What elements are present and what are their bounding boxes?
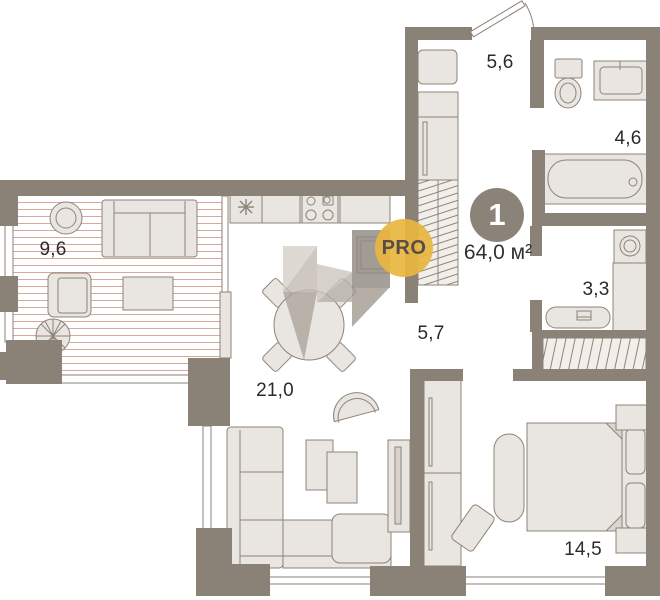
room-label-bedroom: 14,5	[564, 539, 602, 561]
bed	[527, 423, 647, 531]
wc-counter	[613, 263, 648, 333]
window-living-bottom	[266, 577, 372, 584]
rooms-count-badge: 1	[470, 188, 524, 242]
tv-stand	[388, 440, 410, 532]
sink-icon	[238, 199, 254, 215]
coffee-table-2	[327, 452, 357, 503]
wc-wardrobe-hangers	[543, 338, 646, 372]
washing-machine	[614, 230, 646, 263]
room-label-corridor: 5,7	[417, 323, 444, 345]
window-loggia-left-1	[5, 224, 13, 278]
window-loggia-bottom	[60, 375, 190, 383]
bathtub	[542, 154, 648, 204]
floorplan-drawing	[0, 0, 660, 600]
pro-badge-label: PRO	[382, 237, 427, 260]
loggia-table	[123, 277, 173, 310]
window-loggia-inner	[222, 196, 228, 294]
nightstand-top	[616, 405, 648, 430]
stove-icon	[302, 192, 338, 223]
nightstand-bottom	[616, 528, 648, 553]
room-label-entry-hall: 5,6	[486, 52, 513, 74]
bedroom-bench	[494, 434, 524, 522]
pro-badge: PRO	[375, 219, 433, 277]
bath-sink	[594, 61, 648, 100]
window-living-left	[203, 426, 211, 530]
window-loggia-left-2	[5, 310, 13, 342]
window-bedroom-bottom	[464, 577, 607, 584]
room-label-bathroom: 4,6	[614, 128, 641, 150]
rooms-count-value: 1	[488, 197, 505, 233]
loggia-sofa	[102, 200, 197, 257]
room-label-kitchen-living: 21,0	[256, 380, 294, 402]
toilet	[555, 59, 582, 108]
hall-cabinet-tall	[418, 92, 458, 180]
loggia-armchair	[48, 273, 91, 317]
total-area-label: 64,0 м²	[464, 241, 532, 265]
hall-cabinet-small	[418, 50, 457, 84]
wc-sink	[546, 307, 610, 328]
loggia-round-chair-inner	[56, 208, 76, 228]
room-label-wc-laundry: 3,3	[582, 279, 609, 301]
floorplan-card[interactable]: 9,6 5,6 4,6 3,3 5,7 21,0 14,5 1 64,0 м² …	[0, 0, 660, 600]
room-label-loggia: 9,6	[39, 239, 66, 261]
balcony-door	[220, 292, 231, 358]
